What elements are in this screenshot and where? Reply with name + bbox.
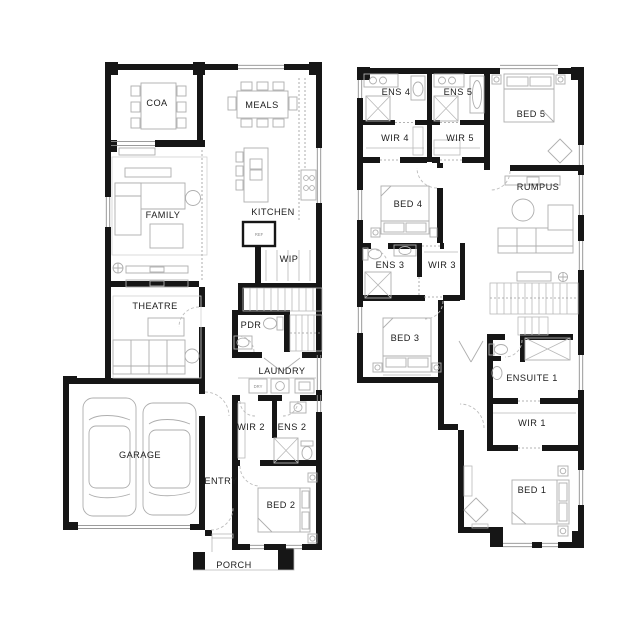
ens3-fixtures: [363, 245, 416, 298]
room-label-ens2: ENS 2: [278, 422, 307, 432]
staircase-icon-first: [490, 283, 578, 335]
first-furniture: [363, 74, 578, 536]
room-label-wip: WIP: [280, 254, 299, 264]
room-label-ens5: ENS 5: [444, 87, 473, 97]
room-label-coa: COA: [146, 98, 168, 108]
cooktop-icon: [299, 78, 316, 220]
ground-floor-plan: REF: [63, 62, 322, 570]
room-label-bed5: BED 5: [517, 109, 546, 119]
room-label-wir4: WIR 4: [381, 133, 409, 143]
fridge-icon: REF: [243, 222, 275, 246]
dryer-label: DRY: [254, 384, 263, 389]
ceiling-fan-icon-theatre: [113, 263, 123, 273]
room-label-theatre: THEATRE: [132, 301, 177, 311]
room-label-bed2: BED 2: [267, 500, 296, 510]
linen-shower-icon: [525, 338, 570, 360]
floor-plan-canvas: REF: [0, 0, 640, 635]
first-floor-plan: ENS 4 ENS 5 BED 5 WIR 4 WIR 5 BED 4 RUMP…: [357, 65, 584, 548]
room-label-wir1: WIR 1: [518, 418, 546, 428]
ground-labels: COA MEALS KITCHEN FAMILY WIP THEATRE PDR…: [119, 98, 306, 570]
room-label-laundry: LAUNDRY: [259, 366, 306, 376]
laundry-appliances: DRY: [238, 378, 316, 393]
wir3-robe-icon: [419, 252, 458, 297]
room-label-wir3: WIR 3: [428, 260, 456, 270]
ceiling-fan-icon-rumpus: [558, 272, 567, 281]
bed3-icon: [373, 318, 441, 375]
room-label-ens3: ENS 3: [376, 260, 405, 270]
kitchen-island-icon: [236, 148, 268, 202]
room-label-bed3: BED 3: [391, 333, 420, 343]
ens4-fixtures: [364, 74, 425, 121]
room-label-wir5: WIR 5: [446, 133, 474, 143]
room-label-bed4: BED 4: [394, 199, 423, 209]
floor-plan-page: REF: [0, 0, 640, 635]
bed1-icon: [464, 466, 569, 536]
room-label-bed1: BED 1: [518, 485, 547, 495]
family-furniture: [112, 157, 207, 255]
room-label-family: FAMILY: [146, 210, 181, 220]
room-label-garage: GARAGE: [119, 450, 161, 460]
fridge-label: REF: [255, 232, 264, 237]
ens5-fixtures: [434, 74, 484, 121]
room-label-wir2: WIR 2: [237, 422, 265, 432]
room-label-meals: MEALS: [245, 100, 278, 110]
room-label-entry: ENTRY: [204, 476, 237, 486]
room-label-kitchen: KITCHEN: [251, 207, 294, 217]
bed4-icon: [371, 186, 437, 237]
room-label-ens4: ENS 4: [382, 87, 411, 97]
room-label-pdr: PDR: [241, 320, 262, 330]
room-label-ensuite1: ENSUITE 1: [506, 373, 558, 383]
room-label-rumpus: RUMPUS: [517, 182, 560, 192]
room-label-porch: PORCH: [216, 560, 251, 570]
pdr-toilet-icon: [264, 317, 284, 330]
